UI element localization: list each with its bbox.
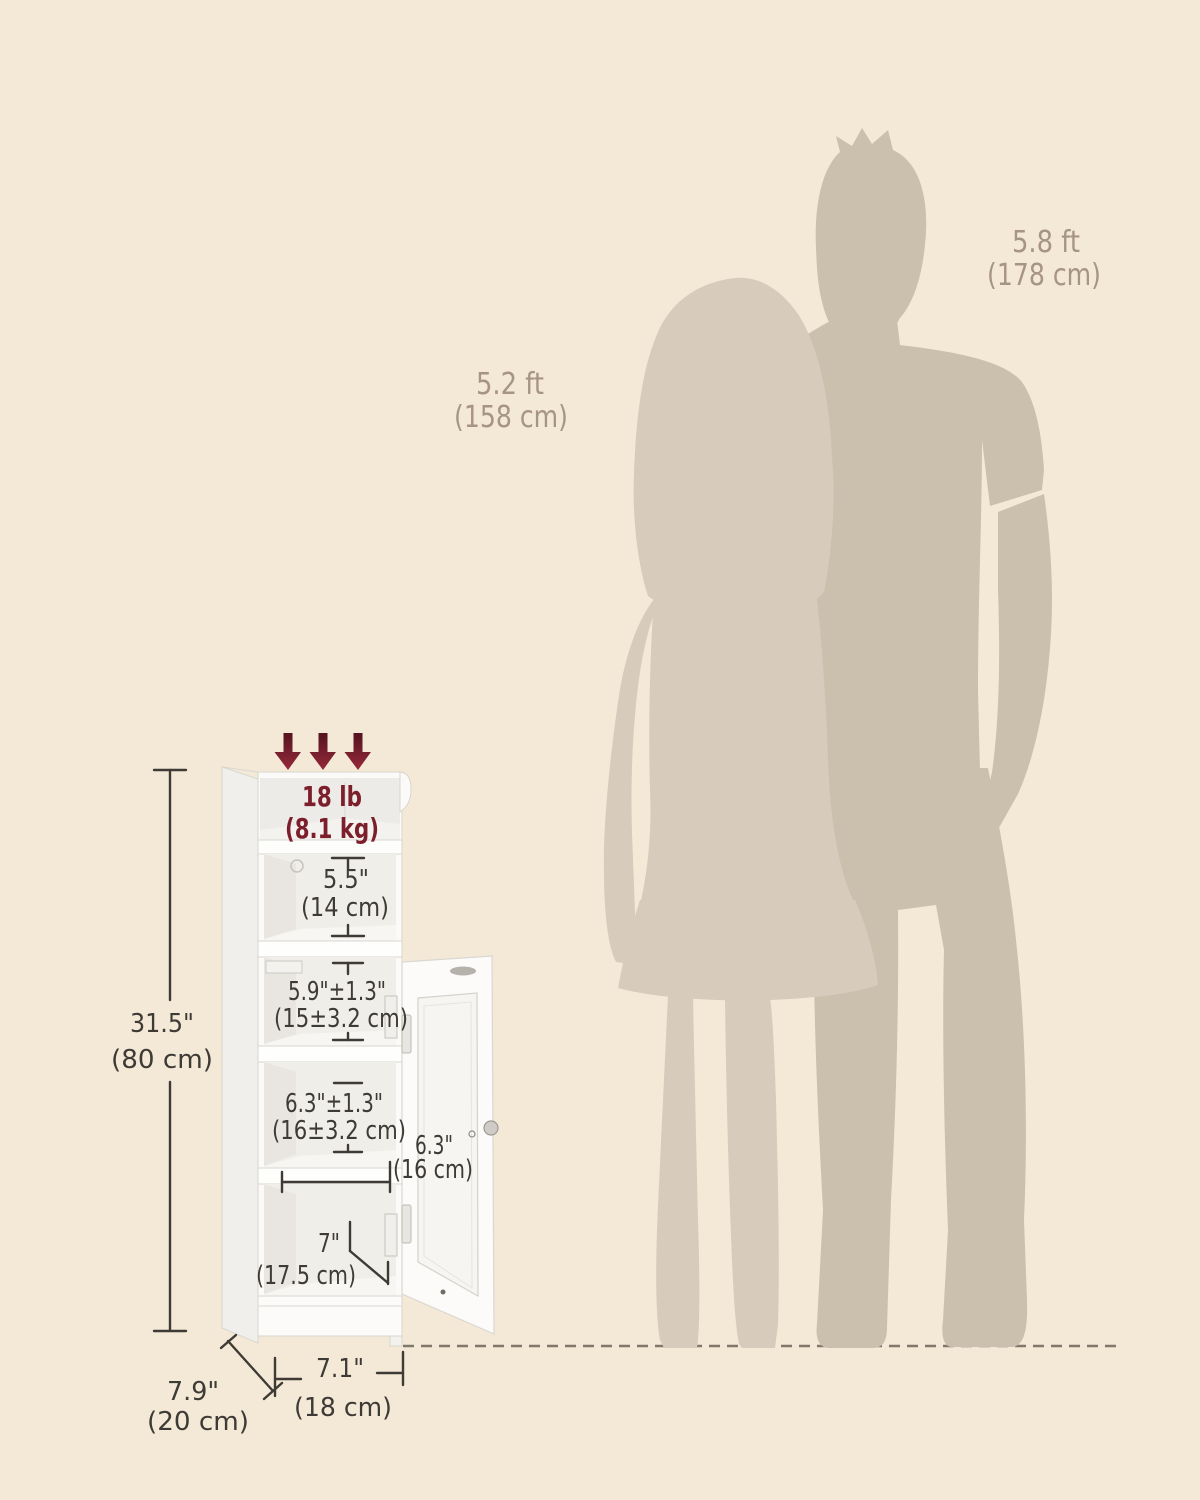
shelf-front-edge — [258, 941, 402, 957]
door-knob — [484, 1121, 498, 1135]
female-skirt — [618, 900, 878, 1000]
shelf-front-edge — [258, 1046, 402, 1062]
cabinet-side-panel — [222, 767, 258, 1343]
door-hinge — [402, 1205, 411, 1243]
cabinet-base — [258, 1296, 402, 1336]
cabinet-foot — [390, 1336, 402, 1346]
shelf-bracket — [266, 961, 302, 973]
door-damper — [450, 967, 476, 976]
hinge-plate — [385, 1214, 397, 1256]
compartment3-in-label: 6.3"±1.3" — [285, 1089, 383, 1119]
compartment2-cm-label: (15±3.2 cm) — [274, 1004, 408, 1034]
max-load-lb-label: 18 lb — [302, 780, 362, 813]
female-height-ft-label: 5.2 ft — [476, 367, 544, 402]
door-dot — [441, 1290, 446, 1295]
max-load-kg-label: (8.1 kg) — [285, 812, 379, 845]
product-dimension-diagram: 5.2 ft (158 cm) 5.8 ft (178 cm) — [0, 0, 1200, 1500]
female-hair — [634, 278, 834, 621]
female-height-cm-label: (158 cm) — [454, 400, 568, 435]
compartment4-in-label: 7" — [318, 1229, 340, 1259]
compartment1-in-label: 5.5" — [323, 865, 369, 895]
male-height-ft-label: 5.8 ft — [1012, 225, 1080, 260]
height-in-label: 31.5" — [130, 1009, 194, 1039]
load-arrows — [275, 733, 372, 770]
compartment1-cm-label: (14 cm) — [301, 893, 389, 923]
depth-cm-label: (20 cm) — [147, 1407, 249, 1437]
width-in-label: 7.1" — [316, 1354, 364, 1384]
diagram-canvas: 5.2 ft (158 cm) 5.8 ft (178 cm) — [0, 0, 1200, 1500]
compartment2-in-label: 5.9"±1.3" — [288, 977, 386, 1007]
shelf-depth-cm-label: (16 cm) — [393, 1155, 473, 1185]
compartment4-cm-label: (17.5 cm) — [256, 1261, 356, 1291]
width-cm-label: (18 cm) — [294, 1393, 392, 1423]
depth-in-label: 7.9" — [167, 1377, 219, 1407]
male-height-cm-label: (178 cm) — [987, 258, 1101, 293]
height-cm-label: (80 cm) — [111, 1045, 213, 1075]
compartment3-cm-label: (16±3.2 cm) — [272, 1116, 406, 1146]
